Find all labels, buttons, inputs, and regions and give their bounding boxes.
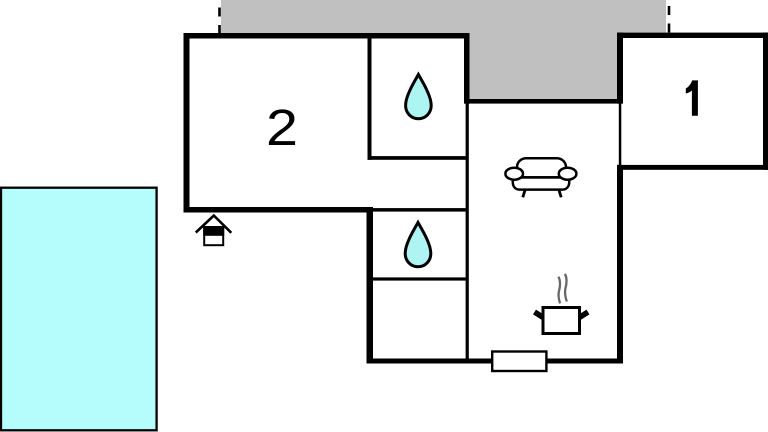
svg-text:2: 2 [266, 99, 298, 156]
